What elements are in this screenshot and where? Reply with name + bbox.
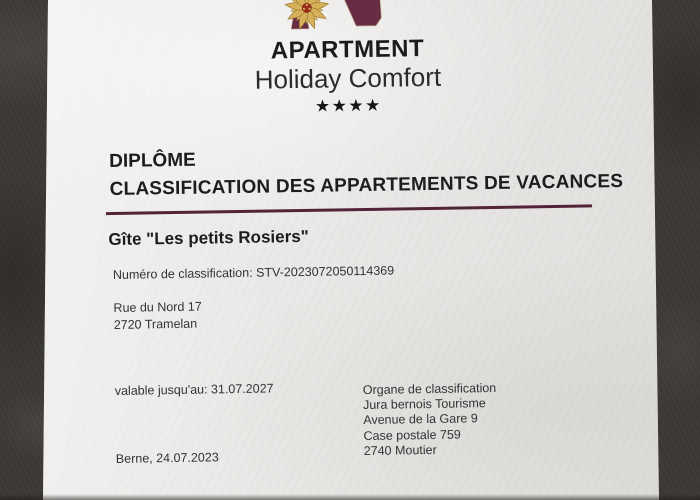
validity-date: valable jusqu'au: 31.07.2027: [115, 381, 274, 397]
star-rating: ★★★★: [268, 95, 428, 118]
brand-wordmark: APARTMENT: [267, 35, 427, 66]
issue-place-date: Berne, 24.07.2023: [116, 450, 219, 466]
property-address-line1: Rue du Nord 17: [113, 299, 202, 317]
classification-body-block: Organe de classification Jura bernois To…: [363, 381, 498, 459]
certificate-photo: APARTMENT Holiday Comfort ★★★★ DIPLÔME C…: [0, 0, 700, 500]
edelweiss-a-monogram-icon: [278, 0, 394, 32]
diploma-subtitle: CLASSIFICATION DES APPARTEMENTS DE VACAN…: [109, 171, 623, 201]
divider-rule: [106, 204, 592, 215]
brand-tagline: Holiday Comfort: [250, 62, 446, 96]
property-address-line2: 2720 Tramelan: [114, 316, 203, 334]
certificate-paper: APARTMENT Holiday Comfort ★★★★ DIPLÔME C…: [0, 0, 700, 500]
photo-bottom-shadow: [0, 494, 700, 500]
property-address: Rue du Nord 17 2720 Tramelan: [113, 299, 202, 334]
diploma-title: DIPLÔME: [109, 150, 196, 173]
property-name: Gîte "Les petits Rosiers": [108, 227, 309, 250]
classification-number: Numéro de classification: STV-2023072050…: [113, 264, 394, 282]
classification-body-street: Avenue de la Gare 9: [363, 411, 497, 428]
certificate-content: APARTMENT Holiday Comfort ★★★★ DIPLÔME C…: [0, 0, 700, 500]
classification-body-city: 2740 Moutier: [364, 442, 498, 459]
